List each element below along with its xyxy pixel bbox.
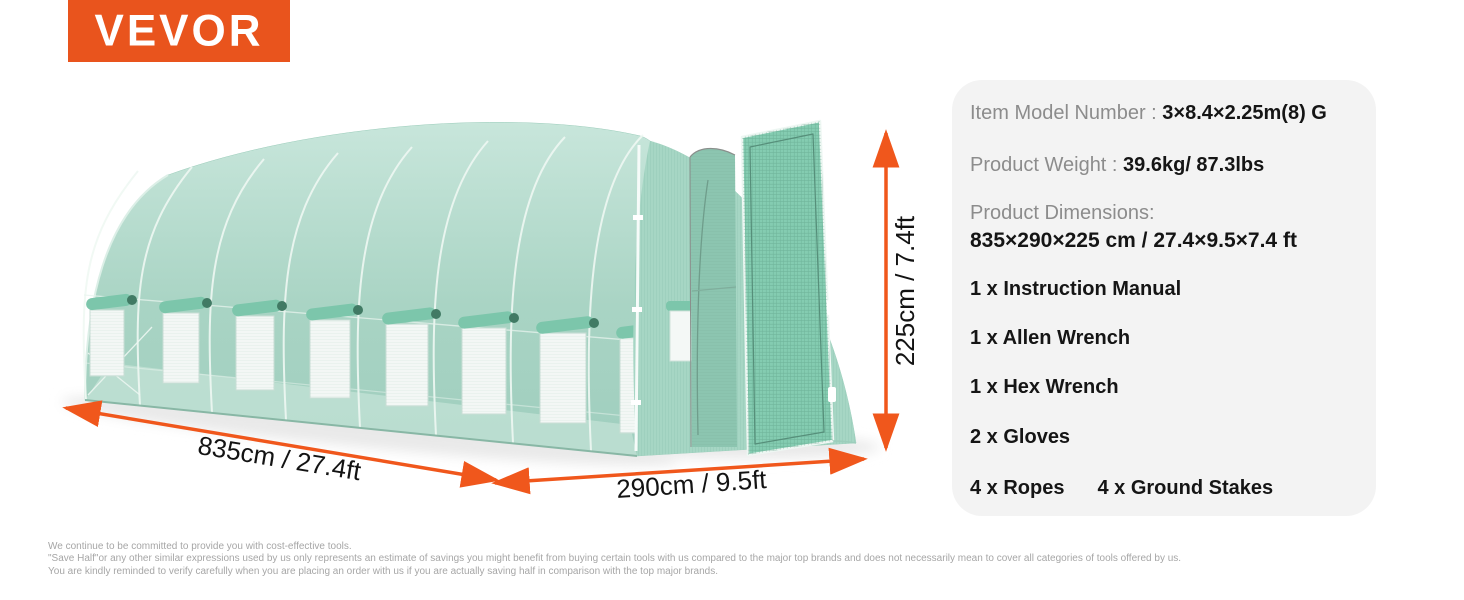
weight-line: Product Weight : 39.6kg/ 87.3lbs bbox=[970, 154, 1364, 177]
height-dimension-label: 225cm / 7.4ft bbox=[890, 215, 920, 366]
vevor-logo: VEVOR bbox=[68, 0, 290, 62]
door-hinge bbox=[826, 207, 834, 222]
model-number-label: Item Model Number : bbox=[970, 102, 1162, 124]
disclaimer: We continue to be committed to provide y… bbox=[48, 541, 1228, 578]
greenhouse-diagram: 835cm / 27.4ft 290cm / 9.5ft 225cm / 7.4… bbox=[40, 95, 930, 585]
dimensions-value: 835×290×225 cm / 27.4×9.5×7.4 ft bbox=[970, 229, 1364, 253]
model-number-value: 3×8.4×2.25m(8) G bbox=[1162, 102, 1327, 124]
disclaimer-line: We continue to be committed to provide y… bbox=[48, 541, 1228, 553]
open-door-panel bbox=[742, 121, 836, 455]
included-item: 1 x Allen Wrench bbox=[970, 327, 1364, 350]
weight-label: Product Weight : bbox=[970, 154, 1123, 176]
included-item: 1 x Hex Wrench bbox=[970, 376, 1364, 399]
included-item: 2 x Gloves bbox=[970, 426, 1364, 449]
included-item-row: 4 x Ropes 4 x Ground Stakes bbox=[970, 477, 1364, 500]
greenhouse-illustration: 835cm / 27.4ft 290cm / 9.5ft 225cm / 7.4… bbox=[40, 95, 930, 585]
disclaimer-line: You are kindly reminded to verify carefu… bbox=[48, 566, 1228, 578]
door-hinge bbox=[828, 387, 836, 402]
spec-panel: Item Model Number : 3×8.4×2.25m(8) G Pro… bbox=[952, 80, 1376, 516]
model-number-line: Item Model Number : 3×8.4×2.25m(8) G bbox=[970, 102, 1364, 125]
weight-value: 39.6kg/ 87.3lbs bbox=[1123, 154, 1264, 176]
door-opening bbox=[690, 149, 737, 448]
vevor-logo-text: VEVOR bbox=[94, 6, 263, 57]
disclaimer-line: "Save Half"or any other similar expressi… bbox=[48, 553, 1228, 565]
included-item: 4 x Ground Stakes bbox=[1097, 477, 1273, 500]
width-dimension-label: 290cm / 9.5ft bbox=[615, 464, 768, 504]
dimensions-label: Product Dimensions: bbox=[970, 202, 1364, 225]
included-item: 4 x Ropes bbox=[970, 477, 1064, 500]
door-hinge bbox=[827, 300, 835, 315]
included-item: 1 x Instruction Manual bbox=[970, 278, 1364, 301]
